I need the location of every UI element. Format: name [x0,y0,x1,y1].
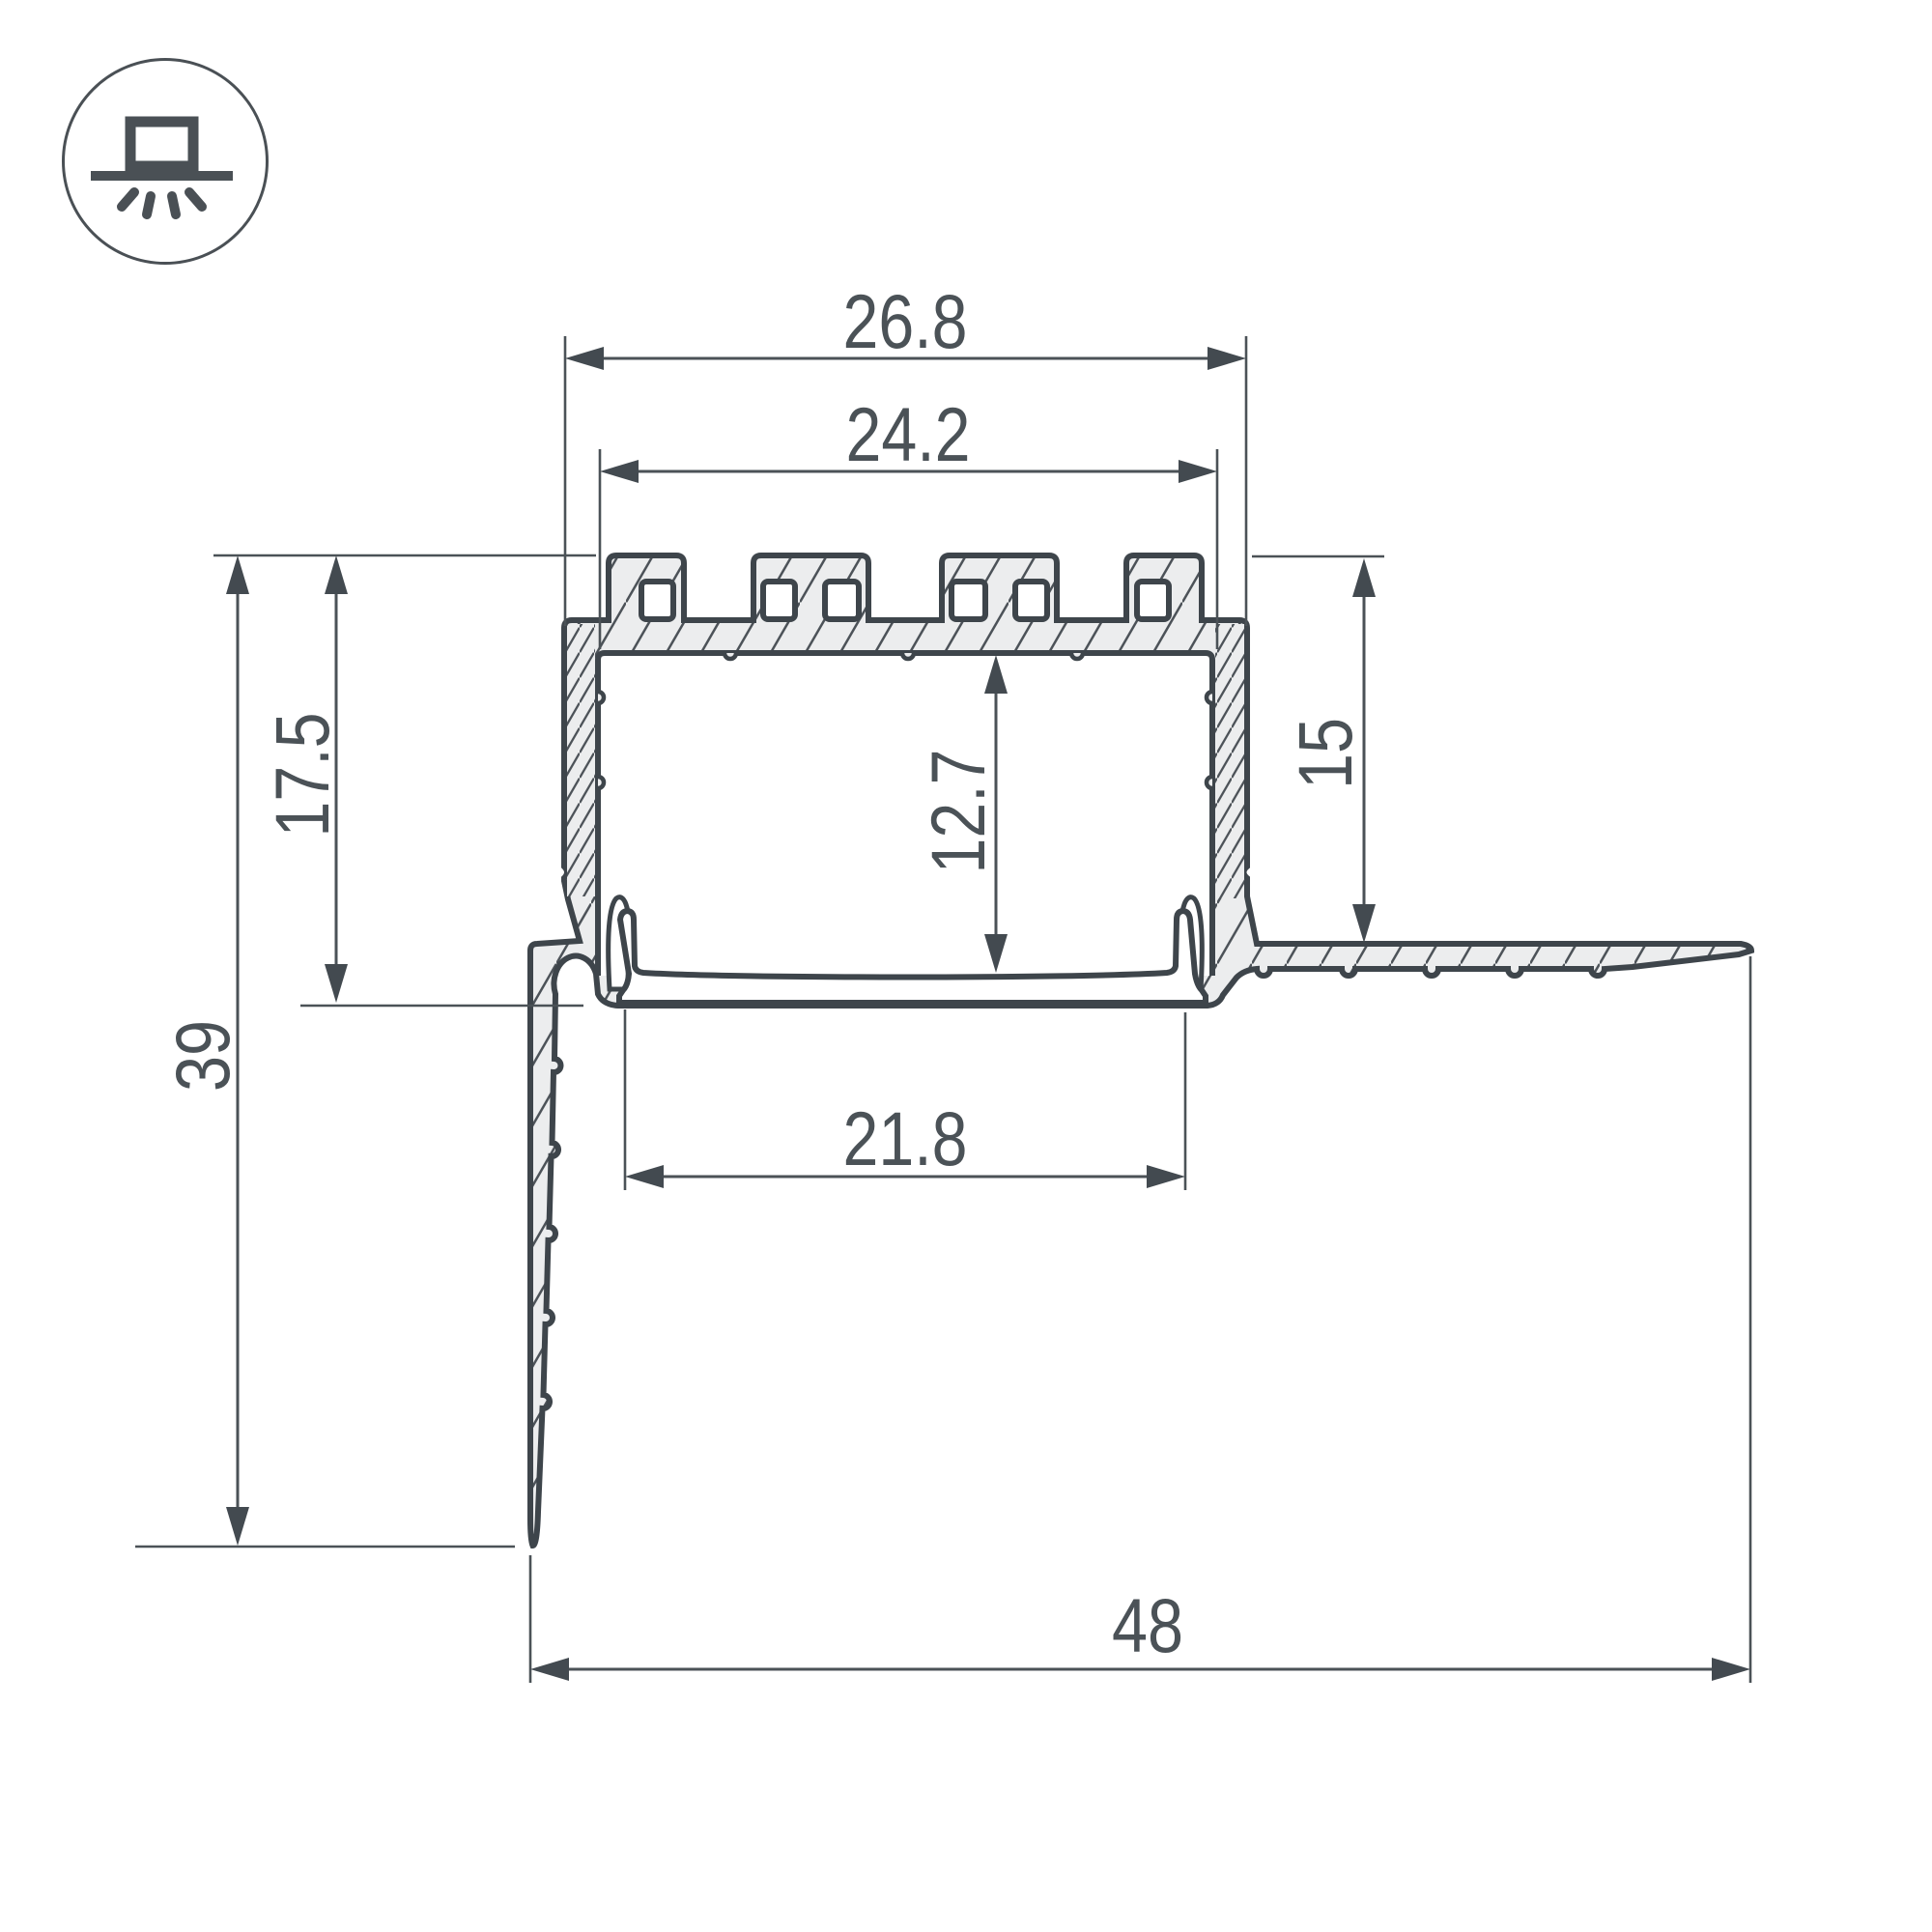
svg-text:12.7: 12.7 [915,750,1001,874]
svg-text:39: 39 [159,1020,245,1092]
svg-text:17.5: 17.5 [259,713,345,838]
svg-text:24.2: 24.2 [846,391,971,477]
svg-text:48: 48 [1112,1582,1183,1668]
svg-text:21.8: 21.8 [843,1095,968,1181]
svg-text:26.8: 26.8 [843,278,968,364]
svg-text:15: 15 [1282,718,1368,789]
